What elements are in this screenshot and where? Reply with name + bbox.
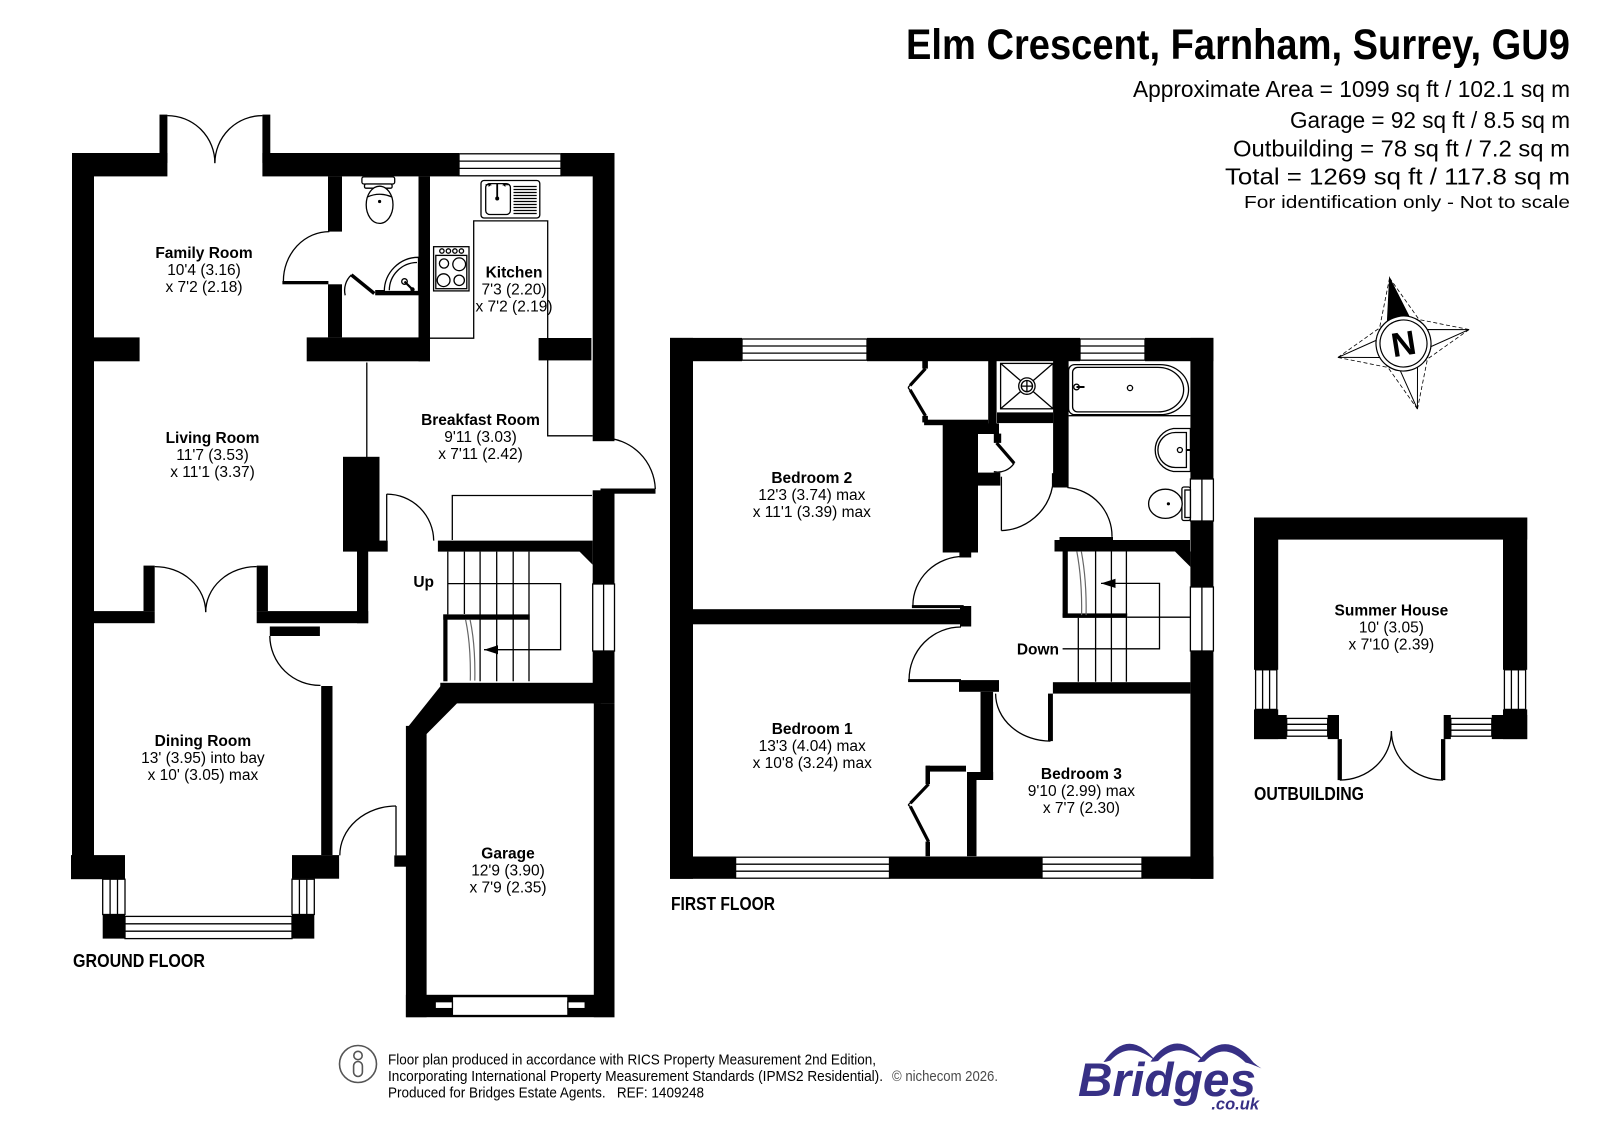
svg-text:Bedroom 2: Bedroom 2 <box>771 470 852 487</box>
svg-text:Family Room: Family Room <box>155 245 252 262</box>
svg-text:x 11'1 (3.39) max: x 11'1 (3.39) max <box>753 504 871 521</box>
svg-text:GROUND FLOOR: GROUND FLOOR <box>73 950 205 971</box>
svg-text:Approximate Area = 1099 sq ft: Approximate Area = 1099 sq ft / 102.1 sq… <box>1133 76 1570 102</box>
svg-text:Breakfast Room: Breakfast Room <box>421 412 540 429</box>
svg-text:Total = 1269 sq ft / 117.8 sq: Total = 1269 sq ft / 117.8 sq m <box>1225 164 1570 190</box>
svg-text:© nichecom 2026.: © nichecom 2026. <box>892 1068 998 1085</box>
svg-text:Down: Down <box>1017 642 1059 659</box>
svg-text:Outbuilding = 78 sq ft / 7.2 s: Outbuilding = 78 sq ft / 7.2 sq m <box>1233 136 1570 162</box>
svg-text:13'3 (4.04) max: 13'3 (4.04) max <box>759 738 866 755</box>
svg-text:x 10' (3.05) max: x 10' (3.05) max <box>148 767 259 784</box>
svg-text:Garage: Garage <box>481 846 535 863</box>
svg-text:x 7'10 (2.39): x 7'10 (2.39) <box>1349 637 1435 654</box>
svg-text:OUTBUILDING: OUTBUILDING <box>1254 783 1364 804</box>
svg-text:x 7'2 (2.18): x 7'2 (2.18) <box>165 279 242 296</box>
svg-text:13' (3.95) into bay: 13' (3.95) into bay <box>141 750 265 767</box>
svg-text:Dining Room: Dining Room <box>155 733 251 750</box>
svg-text:9'10 (2.99) max: 9'10 (2.99) max <box>1028 783 1135 800</box>
svg-text:Floor plan produced in accorda: Floor plan produced in accordance with R… <box>388 1053 876 1069</box>
svg-text:Elm Crescent, Farnham, Surrey,: Elm Crescent, Farnham, Surrey, GU9 <box>906 21 1570 69</box>
svg-text:12'3 (3.74) max: 12'3 (3.74) max <box>758 487 865 504</box>
svg-text:12'9 (3.90): 12'9 (3.90) <box>471 863 545 880</box>
svg-text:Bedroom 3: Bedroom 3 <box>1041 766 1122 783</box>
svg-text:x 7'2 (2.19): x 7'2 (2.19) <box>475 299 552 316</box>
svg-text:Incorporating International Pr: Incorporating International Property Mea… <box>388 1069 883 1085</box>
svg-text:Up: Up <box>413 574 434 591</box>
svg-text:x 10'8 (3.24) max: x 10'8 (3.24) max <box>753 755 873 772</box>
svg-text:x 7'9 (2.35): x 7'9 (2.35) <box>469 880 546 897</box>
svg-text:9'11 (3.03): 9'11 (3.03) <box>444 429 516 446</box>
svg-text:Summer House: Summer House <box>1335 603 1449 620</box>
svg-text:10' (3.05): 10' (3.05) <box>1359 620 1424 637</box>
svg-text:Bedroom 1: Bedroom 1 <box>772 721 853 738</box>
svg-text:FIRST FLOOR: FIRST FLOOR <box>671 893 775 914</box>
svg-text:.co.uk: .co.uk <box>1211 1096 1260 1114</box>
svg-text:11'7 (3.53): 11'7 (3.53) <box>176 447 248 464</box>
svg-text:Garage = 92 sq ft / 8.5 sq m: Garage = 92 sq ft / 8.5 sq m <box>1290 107 1570 133</box>
svg-text:7'3 (2.20): 7'3 (2.20) <box>482 282 547 299</box>
svg-text:Produced for Bridges Estate Ag: Produced for Bridges Estate Agents. REF:… <box>388 1085 704 1101</box>
svg-text:For identification only - Not: For identification only - Not to scale <box>1244 192 1570 212</box>
svg-text:x 7'11 (2.42): x 7'11 (2.42) <box>438 446 523 463</box>
svg-text:x 11'1 (3.37): x 11'1 (3.37) <box>170 464 255 481</box>
svg-text:Kitchen: Kitchen <box>486 265 543 282</box>
svg-text:Living Room: Living Room <box>166 430 260 447</box>
svg-text:10'4 (3.16): 10'4 (3.16) <box>167 262 241 279</box>
svg-text:x 7'7 (2.30): x 7'7 (2.30) <box>1043 800 1120 817</box>
